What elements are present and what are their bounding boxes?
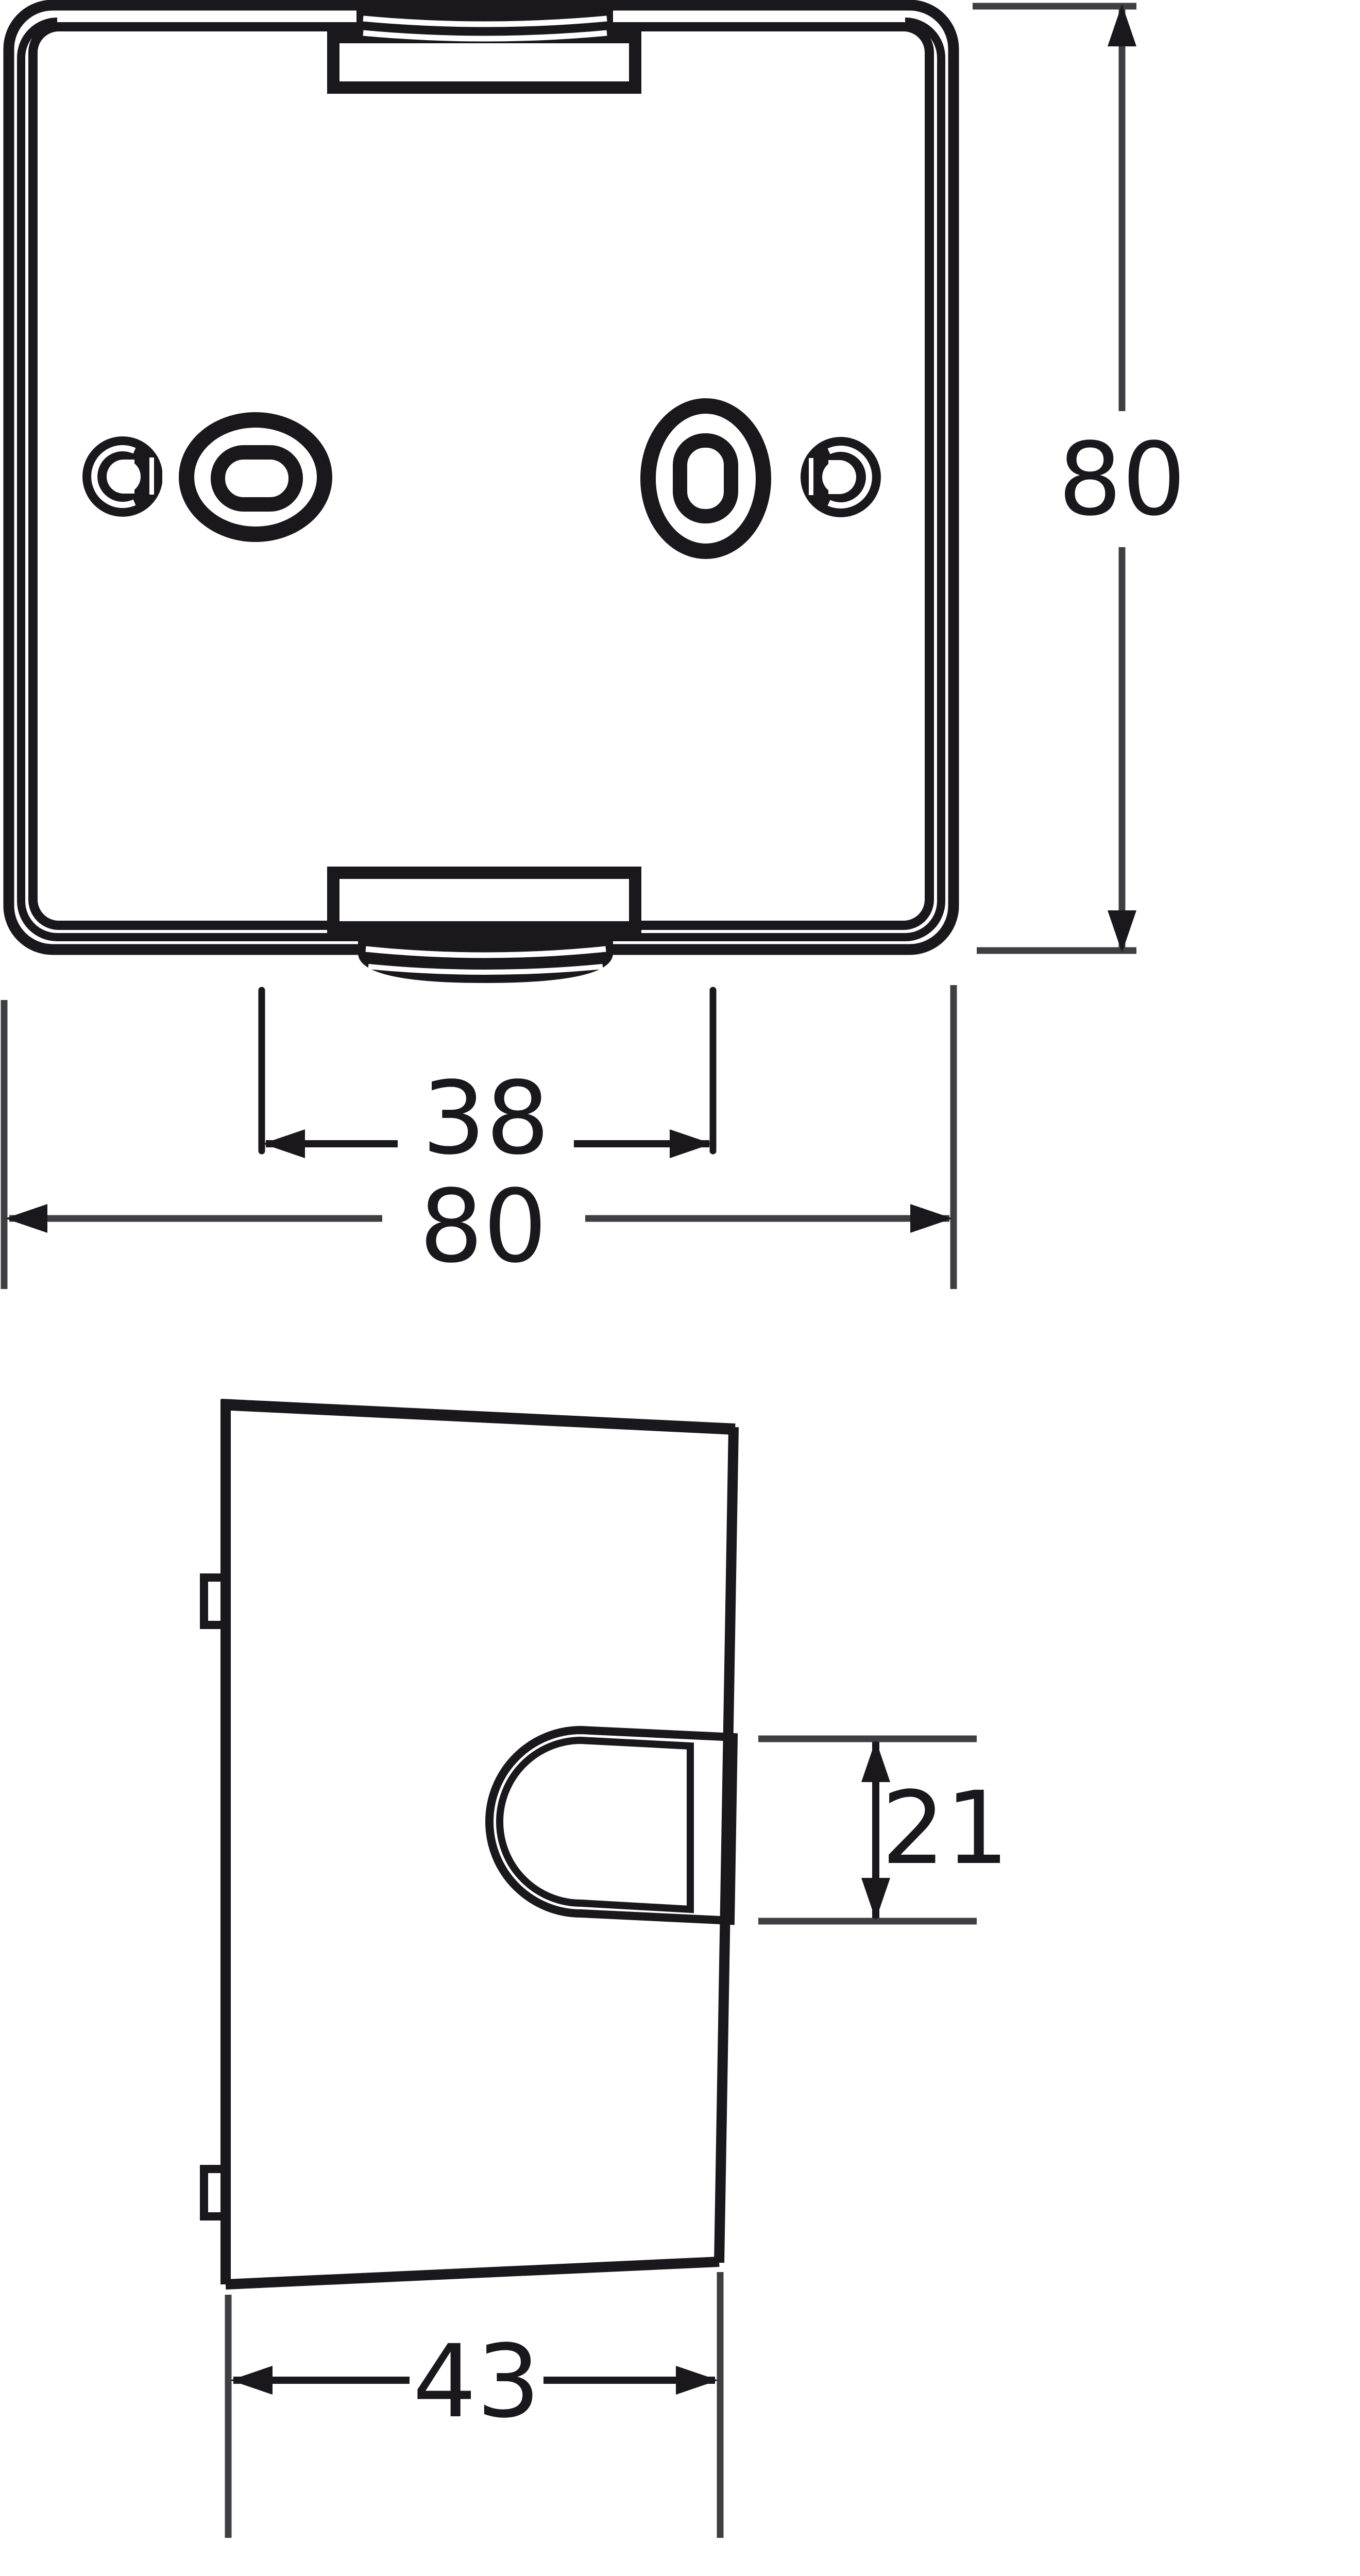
side-bottom-edge — [226, 2262, 719, 2284]
dimension-label-height: 80 — [1058, 421, 1186, 538]
dimension-label-notch: 21 — [881, 1770, 1009, 1887]
technical-drawing-page: 80 38 80 21 — [0, 0, 1360, 2576]
top-knockout-tab — [333, 0, 635, 88]
dimension-arrow-up-icon — [1108, 4, 1136, 46]
dimension-label-spacing: 38 — [422, 1060, 550, 1177]
right-screw-hole — [790, 433, 881, 521]
right-oval-hole — [648, 406, 763, 551]
bottom-knockout-tab — [333, 873, 635, 983]
right-screw-slot-flat — [828, 460, 839, 494]
dimension-arrow-right-icon — [676, 2366, 718, 2395]
side-top-edge — [221, 1404, 735, 1429]
dimension-spacing-38: 38 — [262, 990, 713, 1177]
left-oval-hole — [186, 420, 325, 534]
dimension-arrow-left-icon — [230, 2366, 273, 2395]
dimensional-drawing: 80 38 80 21 — [0, 0, 1360, 2576]
left-screw-flat-cut — [162, 433, 173, 520]
dimension-arrow-right-icon — [910, 1204, 953, 1233]
left-oval-slot — [218, 452, 296, 504]
right-screw-slit — [809, 458, 813, 495]
left-screw-slot-flat — [124, 460, 134, 494]
left-screw-slit — [149, 457, 154, 495]
cable-entry-notch-inner — [500, 1740, 690, 1909]
top-knockout-frame — [333, 37, 635, 88]
dimension-arrow-right-icon — [670, 1129, 712, 1158]
bottom-knockout-frame — [333, 873, 635, 927]
dimension-label-width: 80 — [419, 1168, 547, 1285]
dimension-arrow-left-icon — [263, 1129, 305, 1158]
right-oval-slot — [680, 440, 731, 516]
side-view — [204, 1399, 735, 2284]
dimension-label-depth: 43 — [413, 2323, 540, 2440]
dimension-depth-43: 43 — [228, 2272, 720, 2538]
right-oval-outer — [648, 406, 763, 551]
left-screw-hole — [82, 433, 173, 520]
dimension-notch-21: 21 — [758, 1739, 1009, 1921]
dimension-arrow-left-icon — [5, 1204, 47, 1233]
dimension-arrow-down-icon — [1108, 910, 1136, 953]
dimension-height-80: 80 — [973, 4, 1186, 953]
left-oval-outer — [186, 420, 325, 534]
front-view — [9, 0, 954, 983]
right-screw-flat-cut — [790, 433, 801, 521]
